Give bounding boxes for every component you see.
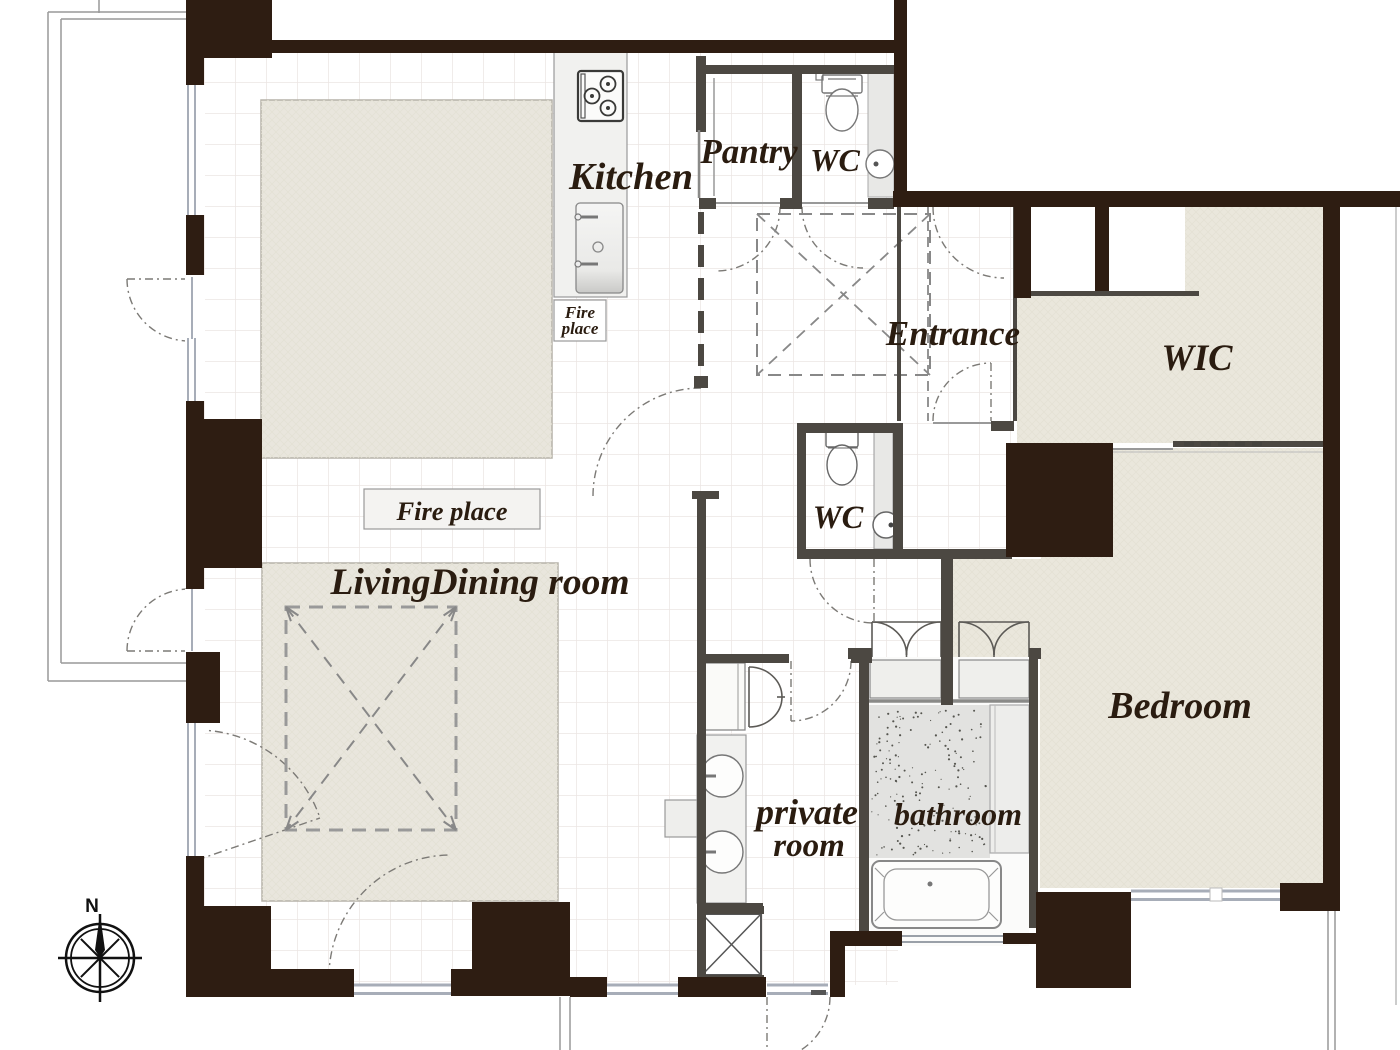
svg-text:Kitchen: Kitchen	[568, 156, 693, 198]
svg-text:Fire place: Fire place	[395, 496, 507, 526]
svg-text:bathroom: bathroom	[894, 796, 1022, 832]
svg-text:WC: WC	[810, 142, 860, 178]
svg-text:N: N	[85, 896, 99, 917]
svg-text:WIC: WIC	[1161, 337, 1233, 378]
svg-text:place: place	[560, 319, 599, 338]
svg-text:Pantry: Pantry	[699, 132, 798, 171]
svg-text:room: room	[773, 828, 845, 864]
svg-text:Entrance: Entrance	[885, 314, 1020, 353]
svg-text:WC: WC	[813, 500, 864, 536]
svg-text:LivingDining room: LivingDining room	[329, 562, 629, 603]
svg-text:private: private	[753, 792, 858, 832]
svg-text:Bedroom: Bedroom	[1107, 685, 1252, 727]
